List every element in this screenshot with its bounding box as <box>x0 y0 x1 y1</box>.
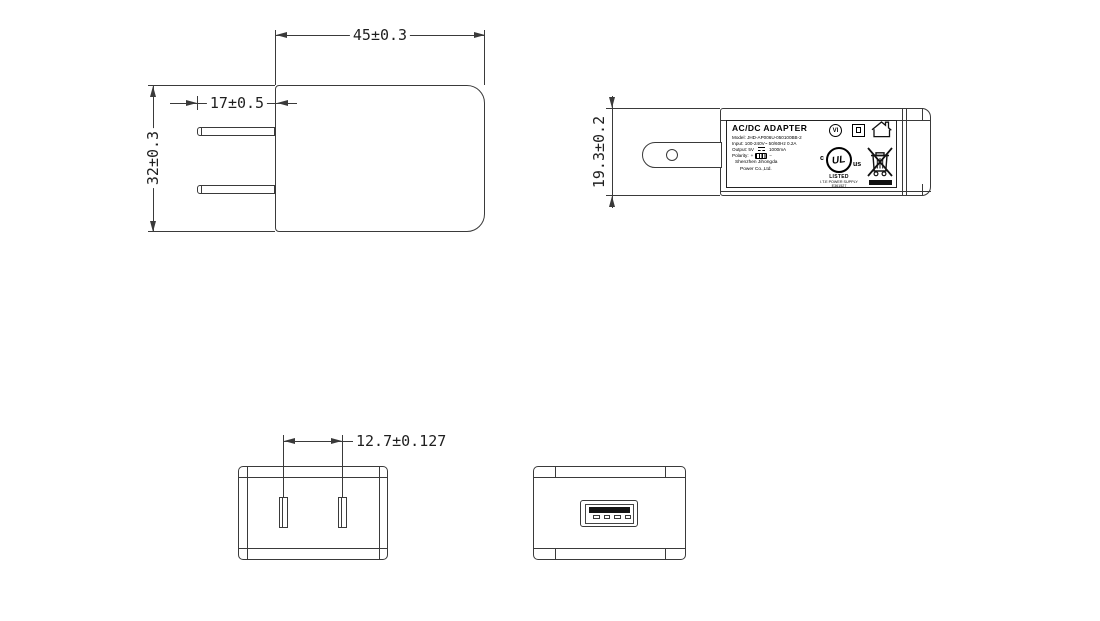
dimension-arrow <box>150 221 156 232</box>
label-output: Output: 5V 1000mA <box>732 147 786 152</box>
usb-face-bottom-band-line <box>533 548 686 549</box>
dimension-arrow <box>150 86 156 97</box>
extension-line <box>275 30 276 85</box>
dc-voltage-icon <box>758 147 765 151</box>
dimension-text-front-height: 32±0.3 <box>145 128 162 188</box>
plug-slot-inner-line <box>282 498 283 527</box>
usb-face-top-band-line <box>533 477 686 478</box>
prong-tip-line <box>201 186 202 193</box>
ul-us-text: us <box>853 161 861 168</box>
front-body-outline <box>275 85 485 232</box>
plug-face-outline <box>238 466 388 560</box>
side-body-cap-tick <box>922 108 923 120</box>
plug-face-side-line <box>247 466 248 560</box>
side-body-cap-line <box>906 108 907 196</box>
dimension-arrow <box>331 438 342 444</box>
usb-face-corner-tick <box>555 466 556 477</box>
usb-contact <box>593 515 600 520</box>
side-prong-hole <box>666 149 678 161</box>
plug-slot-right <box>338 497 347 528</box>
label-title: AC/DC ADAPTER <box>732 123 807 133</box>
extension-line <box>148 85 275 86</box>
side-body-cap-tick <box>922 184 923 196</box>
extension-line <box>484 30 485 85</box>
ul-mark-icon: UL <box>826 147 852 173</box>
extension-line <box>606 195 720 196</box>
extension-line <box>606 108 720 109</box>
ul-logo-text: UL <box>832 154 847 167</box>
label-company-line2: Power Co.,Ltd. <box>740 167 772 172</box>
front-prong-upper <box>197 127 275 136</box>
usb-port-tongue <box>589 507 630 513</box>
dimension-line-side-height <box>612 96 613 208</box>
efficiency-vi-icon: VI <box>829 124 842 137</box>
polarity-minus: − <box>769 153 772 158</box>
usb-connector-icon <box>755 153 767 160</box>
label-polarity: Polarity: + − <box>732 153 772 160</box>
extension-tick <box>197 96 198 110</box>
plug-face-side-line <box>379 466 380 560</box>
indoor-use-house-icon <box>871 121 892 138</box>
plug-face-bottom-band-line <box>238 548 388 549</box>
side-prong <box>642 142 722 168</box>
label-output-pre: Output: 5V <box>732 147 754 152</box>
label-model: Model: JHD-AP006U-050100BB-2 <box>732 135 802 140</box>
label-company-line1: Shenzhen Jihongda <box>735 160 777 165</box>
plug-slot-left <box>279 497 288 528</box>
ul-c-text: c <box>820 155 824 162</box>
dimension-text-prong-length: 17±0.5 <box>207 95 267 112</box>
usb-face-corner-tick <box>665 549 666 560</box>
label-polarity-text: Polarity: <box>732 153 749 158</box>
plug-slot-inner-line <box>341 498 342 527</box>
usb-contact <box>614 515 621 520</box>
ul-file-number: E361527 <box>812 184 866 188</box>
class-ii-inner-square <box>856 127 862 133</box>
front-prong-lower <box>197 185 275 194</box>
class-ii-icon <box>852 124 865 137</box>
label-output-post: 1000mA <box>769 147 786 152</box>
technical-drawing-canvas: 45±0.3 32±0.3 17±0.5 19.3±0.2 <box>0 0 1100 621</box>
dimension-text-side-height: 19.3±0.2 <box>591 113 608 191</box>
usb-face-corner-tick <box>555 549 556 560</box>
dimension-arrow <box>609 196 615 207</box>
dimension-text-pin-spacing: 12.7±0.127 <box>353 433 449 450</box>
plug-face-top-band-line <box>238 477 388 478</box>
efficiency-vi-text: VI <box>833 128 839 134</box>
side-body-bottom-band-line <box>720 191 931 192</box>
dimension-arrow <box>284 438 295 444</box>
dimension-arrow <box>186 100 197 106</box>
label-input: Input: 100-240V~ 50/60Hz 0.2A <box>732 141 797 146</box>
dimension-arrow <box>276 32 287 38</box>
polarity-plus: + <box>751 153 754 158</box>
usb-contact <box>604 515 611 520</box>
extension-line <box>283 435 284 497</box>
dimension-arrow <box>609 97 615 108</box>
extension-line <box>342 435 343 497</box>
usb-contact <box>625 515 632 520</box>
side-body-cap-line <box>902 108 903 196</box>
product-label: AC/DC ADAPTER Model: JHD-AP006U-050100BB… <box>726 120 897 188</box>
dimension-arrow <box>474 32 485 38</box>
extension-line <box>148 231 275 232</box>
weee-bin-icon <box>866 144 894 179</box>
usb-face-corner-tick <box>665 466 666 477</box>
weee-bar <box>869 180 892 185</box>
dimension-arrow <box>277 100 288 106</box>
dimension-text-front-width: 45±0.3 <box>350 27 410 44</box>
prong-tip-line <box>201 128 202 135</box>
